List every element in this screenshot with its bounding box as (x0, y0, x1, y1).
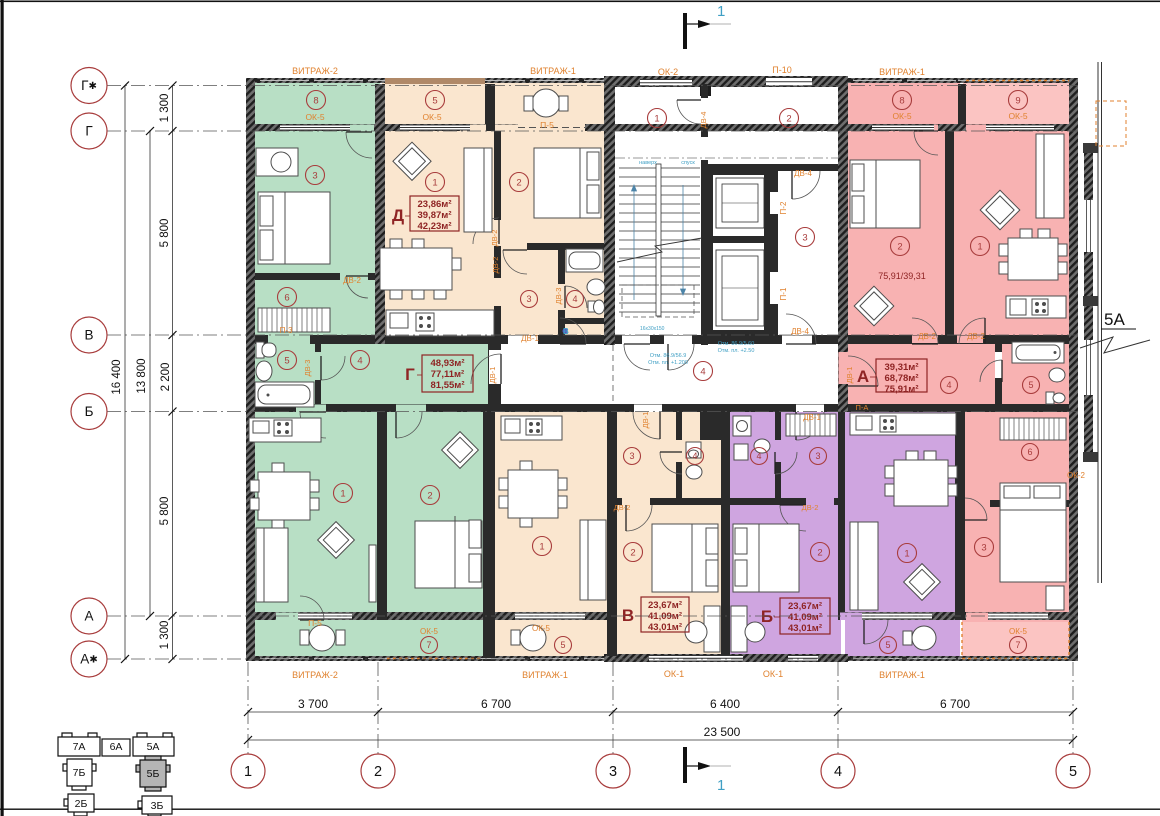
svg-text:3: 3 (802, 232, 807, 243)
svg-text:ДВ-2: ДВ-2 (491, 257, 500, 274)
svg-text:2: 2 (817, 547, 822, 558)
svg-text:42,23м²: 42,23м² (418, 221, 452, 232)
svg-text:ДВ-4: ДВ-4 (699, 112, 708, 129)
svg-text:Д: Д (392, 206, 404, 225)
svg-text:Отм. пл. +2.50: Отм. пл. +2.50 (718, 348, 755, 354)
svg-text:ОК-5: ОК-5 (532, 624, 551, 633)
svg-text:1: 1 (244, 764, 252, 780)
svg-text:2: 2 (630, 547, 635, 558)
svg-text:ДВ-2: ДВ-2 (490, 230, 499, 247)
svg-text:5: 5 (1069, 764, 1077, 780)
svg-text:А: А (857, 367, 869, 386)
svg-text:2: 2 (786, 113, 791, 124)
svg-text:ВИТРАЖ-1: ВИТРАЖ-1 (879, 670, 925, 680)
svg-text:спуск: спуск (681, 160, 695, 166)
svg-text:23,67м²: 23,67м² (648, 600, 682, 611)
svg-text:П-1: П-1 (779, 287, 788, 300)
svg-text:2: 2 (374, 764, 382, 780)
svg-text:7: 7 (1015, 640, 1020, 650)
svg-text:1: 1 (654, 113, 659, 124)
svg-text:1: 1 (717, 777, 725, 794)
svg-text:Г: Г (405, 365, 415, 384)
svg-text:75,91/39,31: 75,91/39,31 (878, 271, 926, 281)
svg-text:ВИТРАЖ-1: ВИТРАЖ-1 (879, 67, 925, 77)
svg-text:5А: 5А (1104, 310, 1125, 329)
svg-text:8: 8 (313, 95, 318, 106)
svg-text:7: 7 (426, 640, 431, 650)
svg-text:13 800: 13 800 (136, 358, 148, 393)
svg-text:4: 4 (572, 294, 577, 304)
svg-text:П-А: П-А (856, 403, 869, 412)
svg-text:Г: Г (85, 124, 93, 139)
svg-text:ДВ-2: ДВ-2 (967, 332, 985, 341)
svg-text:81,55м²: 81,55м² (431, 380, 465, 391)
svg-text:ВИТРАЖ-1: ВИТРАЖ-1 (522, 670, 568, 680)
svg-text:ДВ-4: ДВ-4 (794, 169, 812, 178)
svg-text:ДВ-2: ДВ-2 (614, 503, 631, 512)
svg-text:ДВ-1: ДВ-1 (488, 367, 497, 384)
svg-text:1: 1 (977, 241, 982, 252)
svg-text:ОК-5: ОК-5 (1009, 627, 1028, 636)
svg-text:Отм. пл. +1.200: Отм. пл. +1.200 (648, 360, 688, 366)
svg-text:1 300: 1 300 (159, 621, 171, 650)
svg-text:ОК-1: ОК-1 (664, 669, 684, 679)
svg-text:4: 4 (357, 355, 362, 366)
svg-text:П-5: П-5 (540, 120, 554, 130)
svg-text:П-5: П-5 (308, 618, 322, 628)
svg-text:41,09м²: 41,09м² (648, 611, 682, 622)
svg-text:В: В (84, 328, 93, 343)
svg-text:ДВ-3: ДВ-3 (554, 288, 563, 305)
svg-text:3: 3 (312, 170, 317, 181)
svg-text:2: 2 (516, 177, 521, 188)
svg-text:П-2: П-2 (779, 201, 788, 214)
svg-text:5А: 5А (147, 741, 160, 753)
svg-text:1: 1 (904, 548, 909, 559)
svg-text:ДВ-2: ДВ-2 (918, 332, 936, 341)
svg-text:ОК-5: ОК-5 (305, 112, 324, 122)
svg-text:7Б: 7Б (73, 767, 86, 779)
svg-text:43,01м²: 43,01м² (648, 622, 682, 633)
svg-text:4: 4 (756, 451, 761, 461)
svg-text:1: 1 (717, 3, 725, 20)
svg-text:А✱: А✱ (80, 652, 97, 667)
svg-text:6 700: 6 700 (940, 697, 970, 711)
svg-text:16х30х150: 16х30х150 (640, 326, 665, 332)
svg-text:3 700: 3 700 (298, 697, 328, 711)
svg-text:4: 4 (700, 366, 705, 377)
svg-text:6 700: 6 700 (481, 697, 511, 711)
svg-text:3: 3 (629, 451, 634, 461)
svg-text:5 800: 5 800 (159, 497, 171, 526)
svg-text:77,11м²: 77,11м² (431, 369, 464, 380)
svg-text:7А: 7А (73, 741, 86, 753)
svg-text:8: 8 (899, 95, 904, 106)
svg-text:75,91м²: 75,91м² (885, 384, 919, 395)
svg-text:5: 5 (1028, 380, 1033, 390)
svg-text:2: 2 (427, 490, 432, 501)
svg-text:6: 6 (1027, 447, 1032, 457)
svg-text:3Б: 3Б (151, 800, 164, 812)
svg-text:3: 3 (526, 294, 531, 304)
svg-text:ДВ-2: ДВ-2 (802, 503, 819, 512)
svg-text:48,93м²: 48,93м² (431, 358, 465, 369)
svg-text:ВИТРАЖ-2: ВИТРАЖ-2 (292, 66, 338, 76)
svg-text:4: 4 (692, 451, 697, 461)
svg-text:ДВ-3: ДВ-3 (303, 360, 312, 377)
svg-text:ДВ-1: ДВ-1 (641, 412, 650, 429)
svg-text:ДВ-1: ДВ-1 (845, 367, 854, 384)
svg-text:ОК-2: ОК-2 (658, 67, 678, 77)
svg-text:5Б: 5Б (147, 768, 160, 780)
svg-text:наверх: наверх (639, 160, 657, 166)
svg-text:3: 3 (609, 764, 617, 780)
svg-text:5 800: 5 800 (159, 219, 171, 248)
svg-text:3: 3 (815, 451, 820, 461)
svg-text:Б: Б (761, 607, 773, 626)
svg-text:Б: Б (85, 404, 94, 419)
svg-text:А: А (84, 609, 93, 624)
svg-text:1: 1 (340, 488, 345, 499)
svg-text:43,01м²: 43,01м² (788, 623, 822, 634)
svg-text:3: 3 (981, 542, 986, 553)
svg-text:39,87м²: 39,87м² (418, 210, 452, 221)
svg-text:ДВ-1: ДВ-1 (803, 413, 821, 422)
svg-text:1: 1 (432, 177, 437, 188)
svg-text:4: 4 (946, 380, 951, 390)
svg-text:6А: 6А (110, 741, 123, 753)
svg-text:5: 5 (284, 355, 289, 366)
svg-text:Отм. 86.9/56.9: Отм. 86.9/56.9 (650, 353, 687, 359)
svg-text:9: 9 (1015, 95, 1020, 106)
svg-text:Отм. 86.9/5.60: Отм. 86.9/5.60 (718, 341, 755, 347)
svg-text:ОК-2: ОК-2 (1067, 471, 1086, 480)
svg-text:2Б: 2Б (75, 798, 88, 810)
svg-text:2: 2 (897, 241, 902, 252)
svg-text:П-10: П-10 (772, 65, 791, 75)
svg-text:41,09м²: 41,09м² (788, 612, 822, 623)
svg-text:1: 1 (539, 541, 544, 552)
svg-text:ВИТРАЖ-1: ВИТРАЖ-1 (530, 66, 576, 76)
svg-text:ОК-5: ОК-5 (892, 111, 911, 121)
svg-text:В: В (622, 606, 634, 625)
svg-text:6 400: 6 400 (710, 697, 740, 711)
svg-text:4: 4 (834, 764, 842, 780)
svg-text:23,86м²: 23,86м² (418, 199, 452, 210)
svg-text:39,31м²: 39,31м² (885, 362, 919, 373)
svg-text:6: 6 (284, 292, 289, 303)
svg-text:68,78м²: 68,78м² (885, 373, 919, 384)
svg-text:ОК-1: ОК-1 (763, 669, 783, 679)
svg-text:5: 5 (885, 640, 890, 650)
svg-text:ДВ-2: ДВ-2 (343, 276, 361, 285)
svg-text:П-3: П-3 (280, 326, 293, 335)
svg-text:ОК-5: ОК-5 (1008, 111, 1027, 121)
svg-text:ОК-5: ОК-5 (422, 112, 441, 122)
svg-text:2 200: 2 200 (160, 363, 172, 392)
svg-text:23 500: 23 500 (704, 725, 741, 739)
svg-text:16 400: 16 400 (111, 359, 123, 394)
svg-text:5: 5 (432, 95, 437, 106)
svg-text:5: 5 (560, 640, 565, 650)
svg-text:1 300: 1 300 (159, 94, 171, 123)
svg-text:ВИТРАЖ-2: ВИТРАЖ-2 (292, 670, 338, 680)
svg-text:23,67м²: 23,67м² (788, 601, 822, 612)
svg-text:Г✱: Г✱ (81, 78, 97, 93)
svg-text:ОК-5: ОК-5 (420, 627, 439, 636)
